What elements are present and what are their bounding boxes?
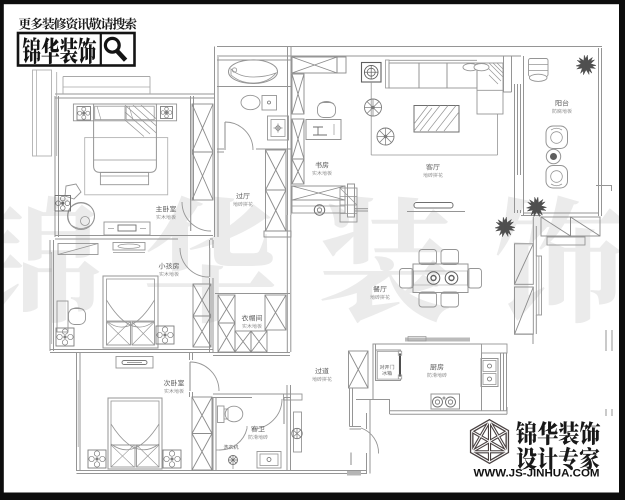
svg-text:WWW.JS-JINHUA.COM: WWW.JS-JINHUA.COM [474,468,600,480]
